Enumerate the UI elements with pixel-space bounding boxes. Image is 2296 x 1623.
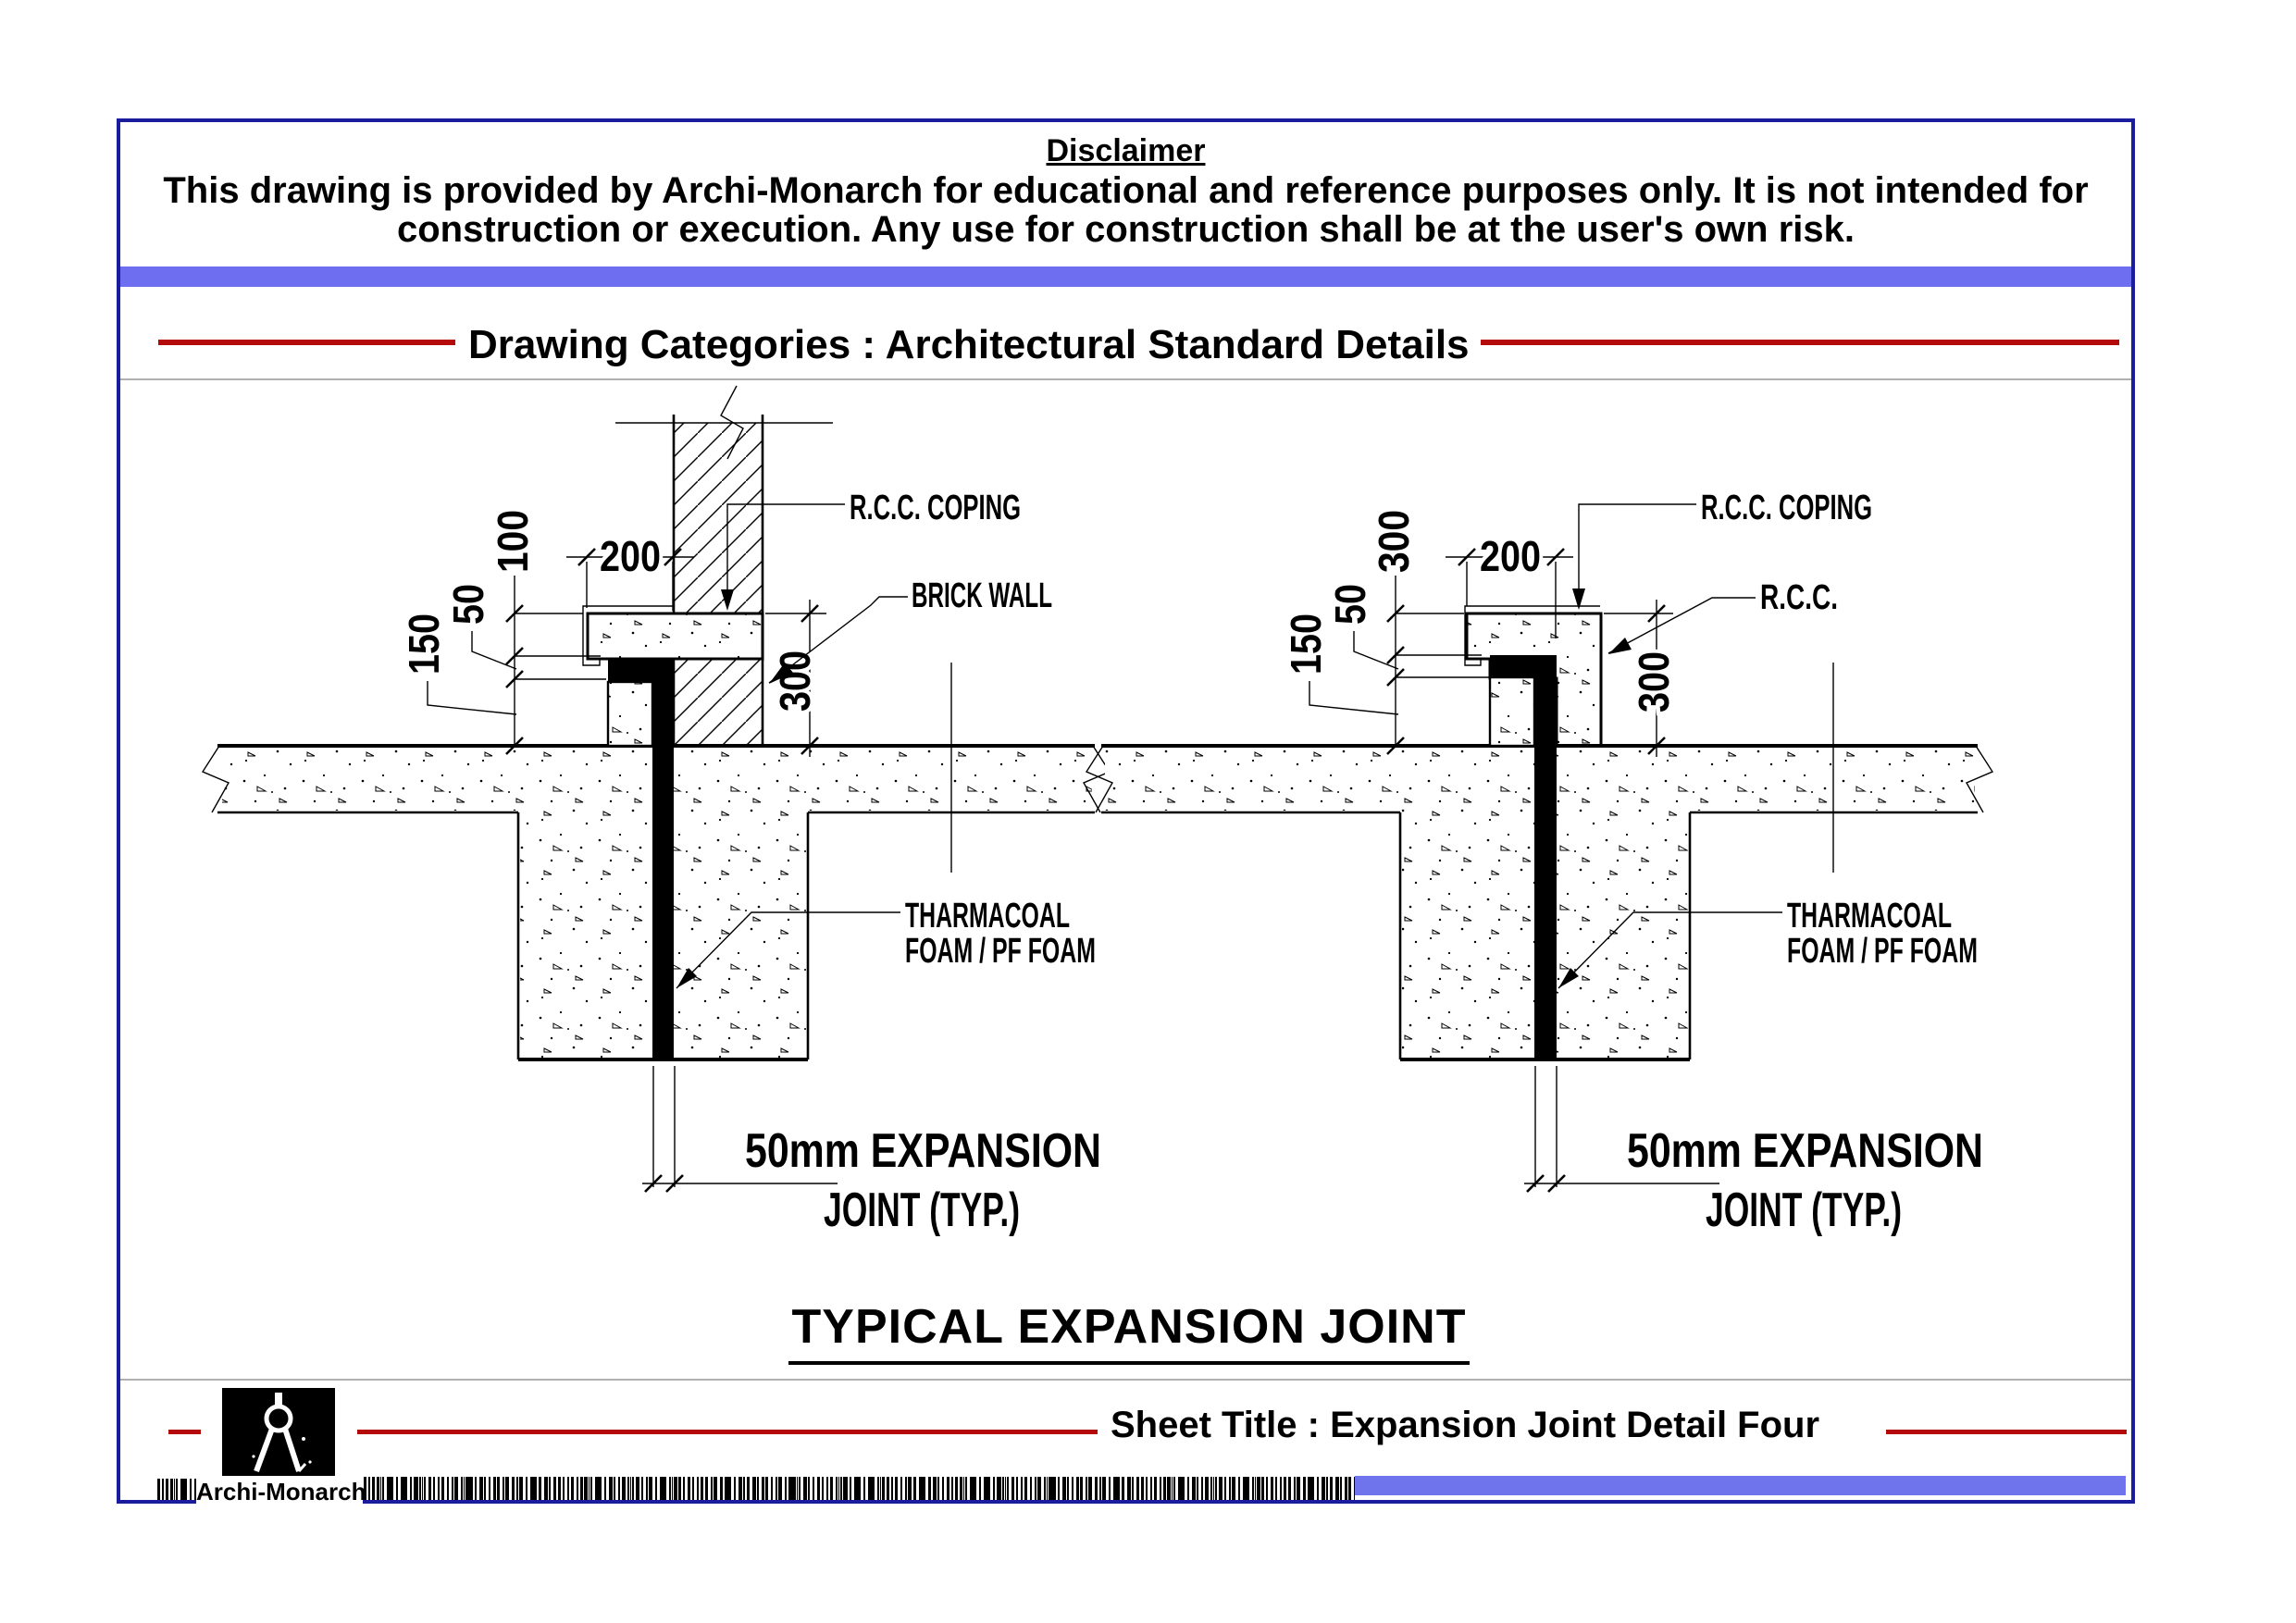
footer-red-dash-left	[168, 1430, 201, 1434]
drawing-sheet: Disclaimer This drawing is provided by A…	[0, 0, 2296, 1623]
label-joint-line1: 50mm EXPANSION	[1627, 1124, 1983, 1178]
rcc-coping	[583, 606, 763, 665]
dimension-stack-left: 100 50 150	[400, 510, 606, 754]
label-rcc-coping: R.C.C. COPING	[850, 489, 1021, 527]
label-joint-line1: 50mm EXPANSION	[745, 1124, 1101, 1178]
dim-50: 50	[444, 584, 492, 625]
footer-red-rule-left	[357, 1430, 1098, 1434]
dim-50: 50	[1326, 584, 1374, 625]
barcode	[157, 1479, 201, 1500]
sheet-title: Sheet Title : Expansion Joint Detail Fou…	[1111, 1405, 1819, 1446]
label-joint-line2: JOINT (TYP.)	[824, 1183, 1020, 1237]
dim-150: 150	[400, 613, 448, 675]
label-foam-line2: FOAM / PF FOAM	[1787, 932, 1978, 971]
dim-200: 200	[600, 532, 661, 580]
label-brick-wall: BRICK WALL	[912, 576, 1052, 615]
dim-100: 100	[489, 510, 537, 573]
footer-red-rule-right	[1886, 1430, 2127, 1434]
leader-rcc-wall: R.C.C.	[1608, 578, 1838, 654]
drawing-title: TYPICAL EXPANSION JOINT	[722, 1299, 1536, 1355]
label-foam-line1: THARMACOAL	[1787, 897, 1952, 935]
divider-bottom	[120, 1379, 2131, 1381]
brand-name: Archi-Monarch	[196, 1478, 363, 1506]
right-expansion-joint-detail: 300 50 150 200 300	[1086, 489, 1992, 1237]
label-rcc-coping: R.C.C. COPING	[1701, 489, 1872, 527]
left-expansion-joint-detail: 100 50 150 200 300	[203, 386, 1110, 1237]
label-foam-line2: FOAM / PF FOAM	[905, 932, 1096, 971]
barcode	[364, 1477, 1355, 1500]
label-joint-line2: JOINT (TYP.)	[1706, 1183, 1902, 1237]
dim-150: 150	[1282, 613, 1330, 675]
concrete-upstand	[1490, 677, 1534, 746]
archi-monarch-logo	[222, 1388, 335, 1476]
dim-300: 300	[771, 650, 819, 712]
bottom-accent-bar	[1355, 1476, 2126, 1495]
concrete-upstand	[608, 682, 652, 746]
label-rcc: R.C.C.	[1760, 578, 1838, 617]
dim-200: 200	[1480, 532, 1541, 580]
dim-300-top: 300	[1370, 510, 1418, 573]
label-foam-line1: THARMACOAL	[905, 897, 1070, 935]
dimension-300: 300	[1604, 600, 1678, 757]
dim-300: 300	[1630, 651, 1678, 712]
